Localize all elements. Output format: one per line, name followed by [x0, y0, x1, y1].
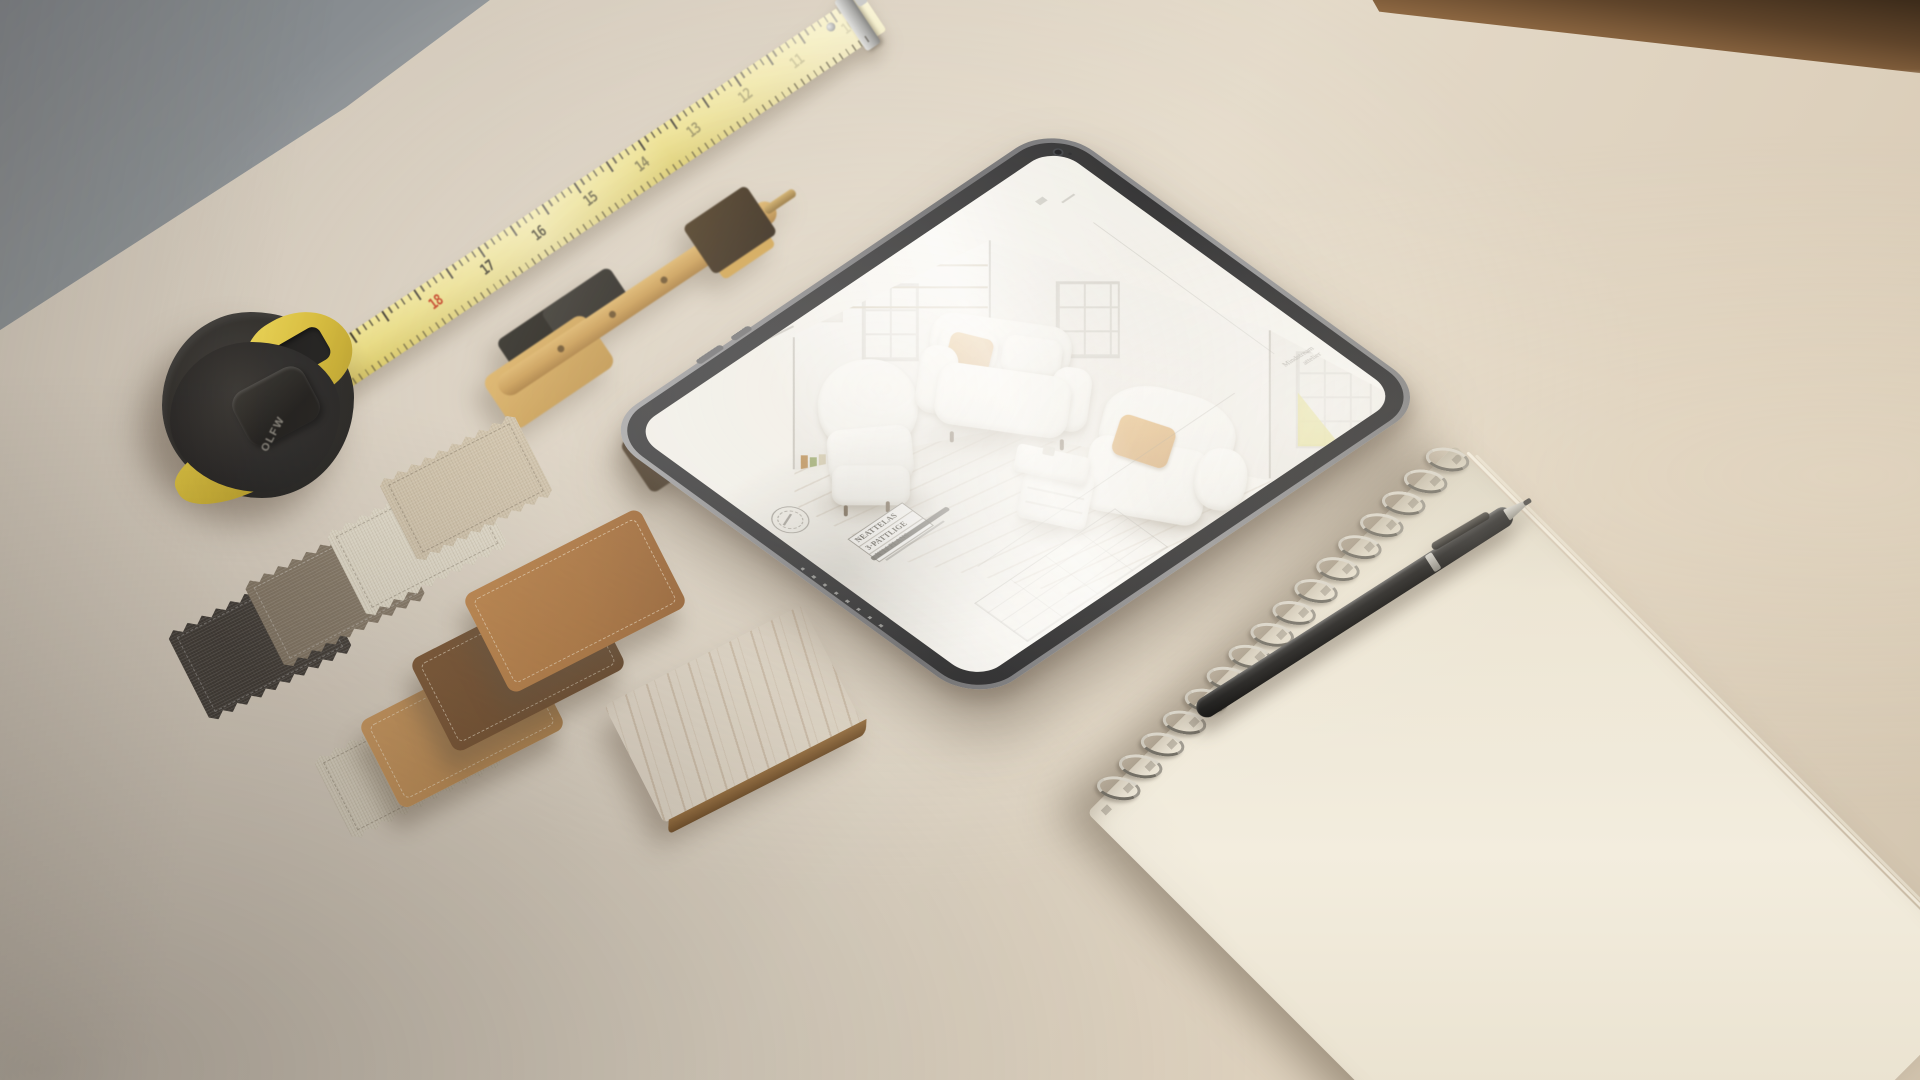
designer-desk-scene: 181716151413121110 OLFW	[0, 0, 1920, 1080]
pen-point	[1523, 498, 1532, 507]
margin-note: Mindstream attelier	[1249, 345, 1324, 394]
approval-stamp-icon	[764, 501, 817, 539]
tape-number-12: 12	[734, 84, 755, 107]
toolbar-glyph	[1035, 197, 1048, 206]
spiral-coil	[1095, 773, 1142, 803]
tape-number-11: 11	[786, 50, 807, 73]
oak-sample-block	[604, 605, 862, 823]
dimension-line	[1093, 222, 1275, 354]
gauge-beam-hole	[608, 310, 618, 320]
toolbar-glyph	[1061, 194, 1075, 204]
gauge-beam-hole	[659, 275, 669, 285]
tape-number-18: 18	[425, 291, 446, 314]
gauge-beam-hole	[556, 344, 566, 354]
drawing-title-block: NEATTELAS 3·PATTLIGE Nº14 PLANS	[847, 502, 934, 562]
tape-measure-body: OLFW	[162, 312, 354, 498]
tape-number-14: 14	[631, 153, 652, 176]
tape-number-13: 13	[683, 119, 704, 142]
wood-shelf-edge	[1368, 0, 1920, 74]
